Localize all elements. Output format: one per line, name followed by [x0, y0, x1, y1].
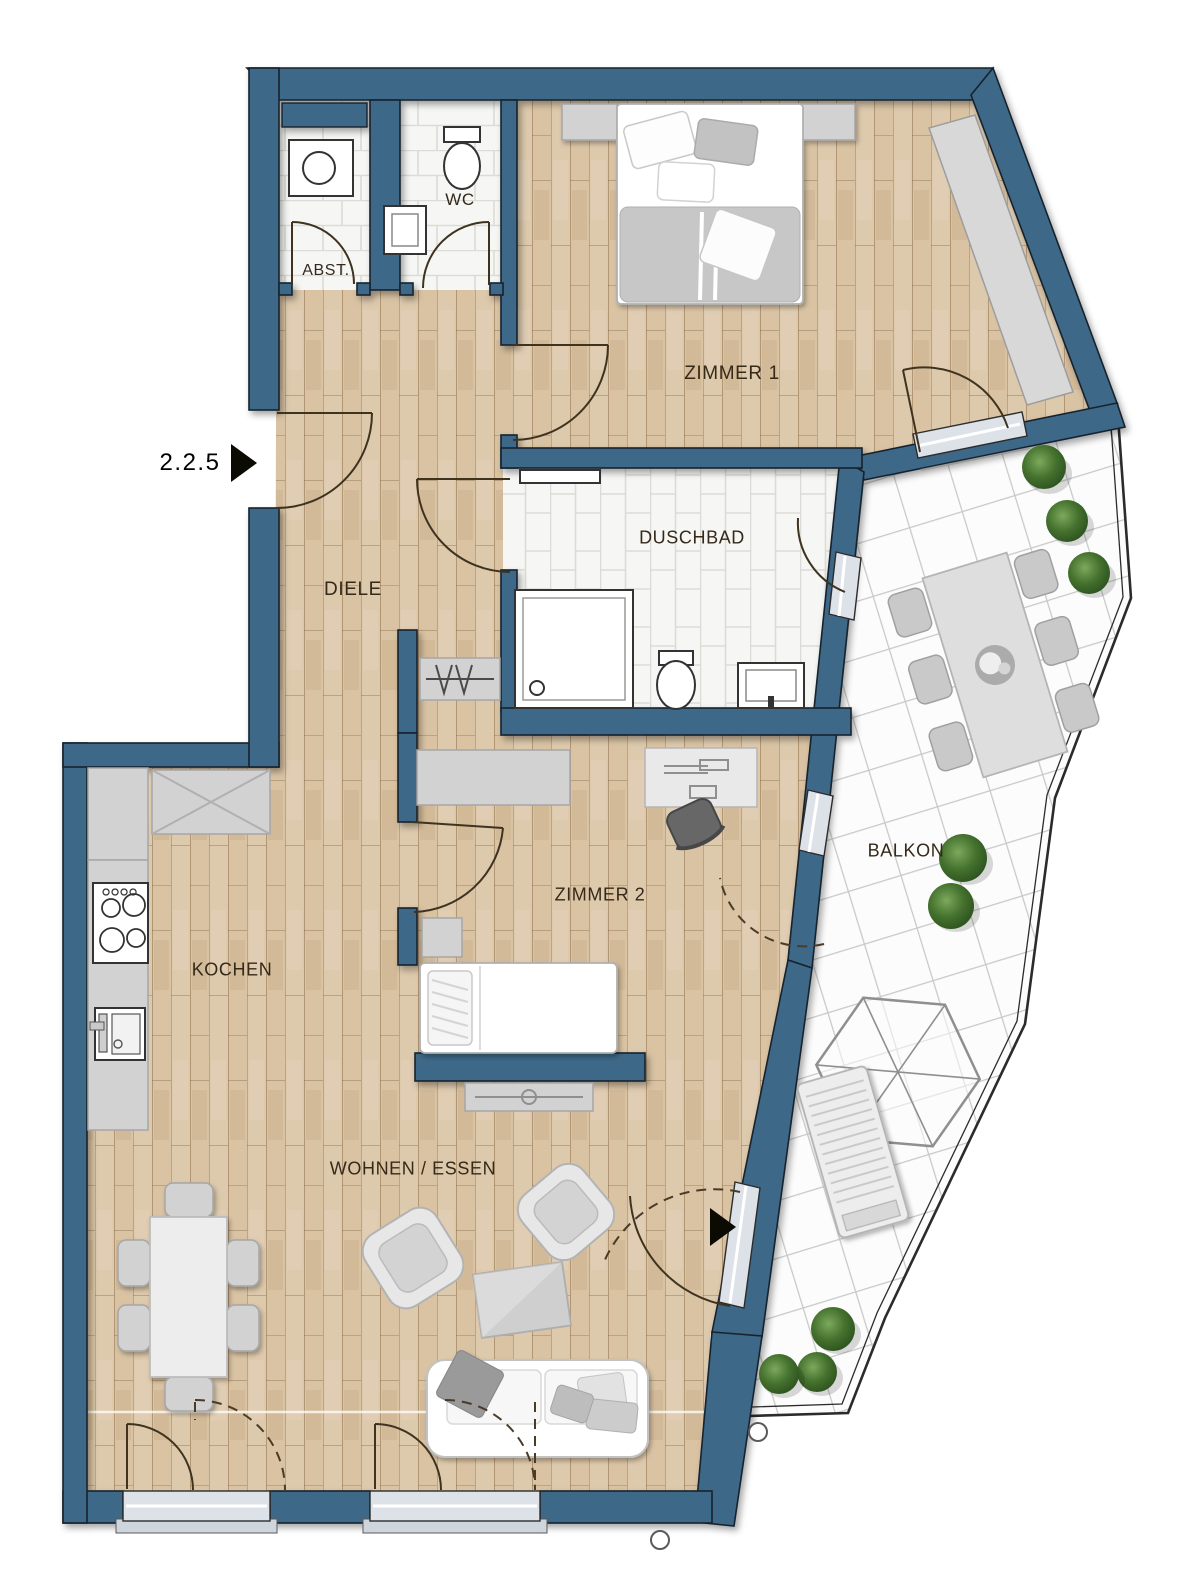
room-label-diele: DIELE	[324, 579, 382, 601]
entrance-arrow	[231, 444, 257, 482]
sofa	[427, 1349, 648, 1457]
window-living-1	[116, 1491, 277, 1533]
oven	[90, 1008, 145, 1060]
wc-sink	[384, 206, 426, 254]
coffee-table	[473, 1262, 571, 1338]
wc-toilet	[444, 127, 480, 189]
washing-machine	[289, 140, 353, 196]
duschbad-sink	[738, 663, 804, 708]
room-label-balkon: BALKON	[868, 841, 945, 862]
sideboard	[465, 1083, 593, 1111]
corner-cabinet	[152, 770, 270, 834]
coat-rack	[420, 658, 500, 700]
room-label-abst: ABST.	[302, 262, 349, 280]
duschbad-toilet	[657, 651, 695, 709]
unit-number-label: 2.2.5	[160, 449, 221, 477]
stove	[93, 883, 148, 963]
floor-plan-drawing	[0, 0, 1200, 1596]
radiator	[520, 470, 600, 483]
room-label-wc: WC	[445, 190, 475, 210]
dining-table	[150, 1217, 227, 1377]
room-label-zimmer1: ZIMMER 1	[684, 363, 780, 385]
marker-circle	[651, 1531, 669, 1549]
marker-circle	[749, 1423, 767, 1441]
nightstand	[422, 918, 462, 957]
shower	[515, 590, 633, 708]
room-label-wohnen-essen: WOHNEN / ESSEN	[330, 1159, 496, 1180]
window-living-2	[363, 1491, 547, 1533]
floor-plan-page: 2.2.5 ABST. WC ZIMMER 1 DIELE DUSCHBAD Z…	[0, 0, 1200, 1596]
wardrobe-zimmer2	[417, 750, 570, 805]
room-label-duschbad: DUSCHBAD	[639, 528, 745, 549]
room-label-zimmer2: ZIMMER 2	[555, 885, 646, 906]
room-label-kochen: KOCHEN	[192, 960, 273, 981]
single-bed	[420, 963, 617, 1053]
